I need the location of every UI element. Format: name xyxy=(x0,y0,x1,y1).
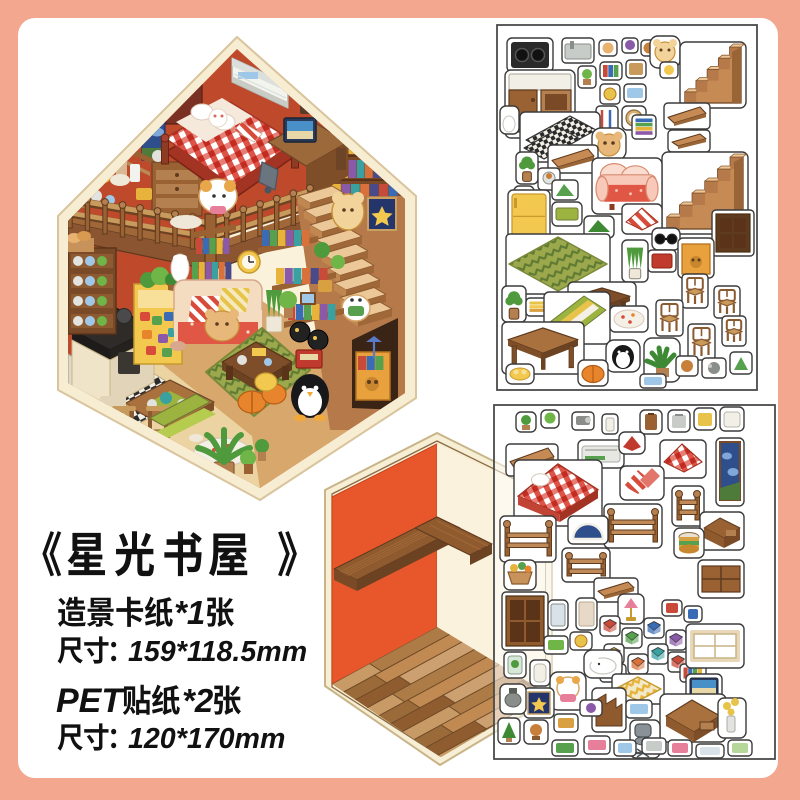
svg-text:*1: *1 xyxy=(174,594,205,631)
svg-text:PET: PET xyxy=(56,682,125,720)
svg-text:*2: *2 xyxy=(182,682,214,719)
svg-text:120*170mm: 120*170mm xyxy=(128,723,285,755)
svg-text:159*118.5mm: 159*118.5mm xyxy=(128,636,307,668)
